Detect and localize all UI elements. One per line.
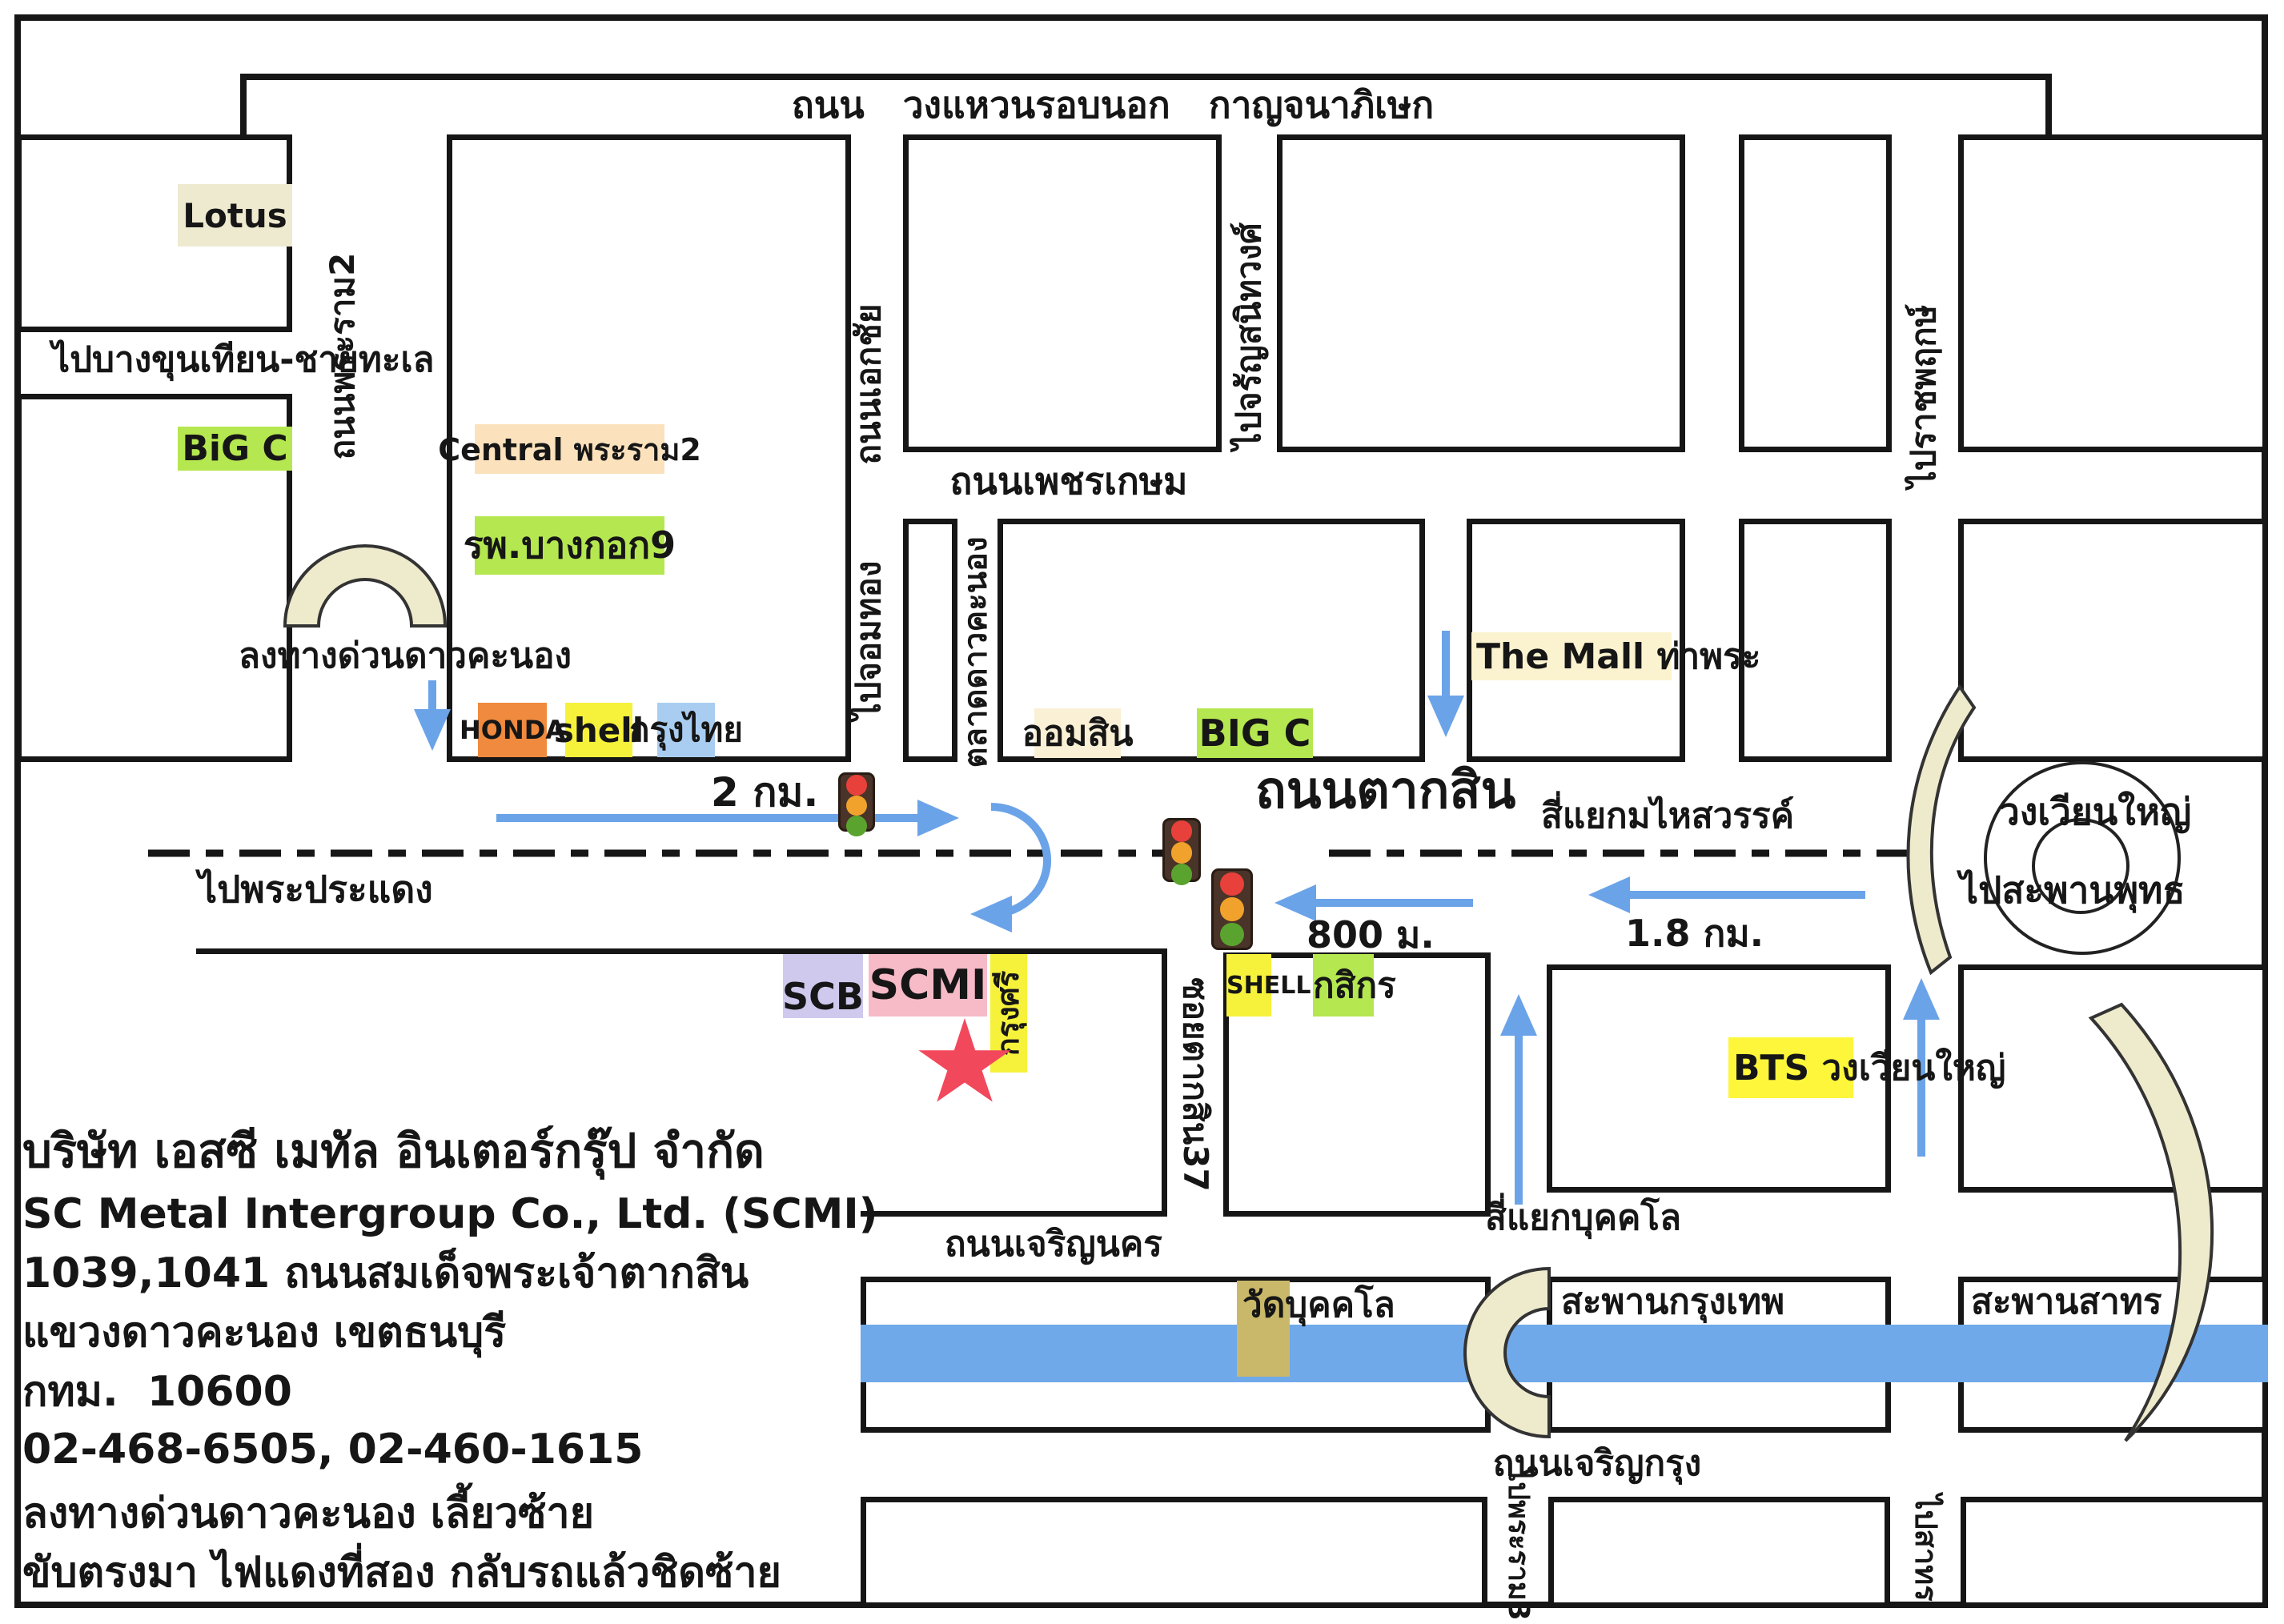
landmark-label-sathorn-bridge: สะพานสาทร (1971, 1282, 2162, 1323)
company-name-en: SC Metal Intergroup Co., Ltd. (SCMI) (22, 1191, 878, 1239)
road-label-ekkachai: ถนนเอกชัย (845, 252, 893, 516)
destination-label-bangkhunthian: ไปบางขุนเทียน-ชายทะเล (52, 340, 435, 381)
bangkok9-hospital-box: รพ.บางกอก9 (475, 516, 664, 575)
route-uturn-arrow (991, 807, 1047, 914)
traffic-light-icon (1211, 868, 1253, 950)
company-address1: 1039,1041 ถนนสมเด็จพระเจ้าตากสิน (22, 1250, 749, 1298)
the-mall-box: The Mall ท่าพระ (1471, 632, 1672, 680)
traffic-light-icon (838, 772, 875, 832)
bts-wongwianyai-box: BTS วงเวียนใหญ่ (1728, 1037, 1853, 1098)
road-label-phetkasem: ถนนเพชรเกษม (921, 456, 1217, 506)
directions-line2: ขับตรงมา ไฟแดงที่สอง กลับรถแล้วชิดซ้าย (22, 1550, 781, 1598)
destination-label-charan: ไปจรัญสนิทวงศ์ (1225, 164, 1273, 508)
road-label-soi-taksin37: ซอยตากสิน37 (1171, 952, 1219, 1217)
scb-bank-box: SCB (783, 954, 863, 1018)
junction-label-expressway-exit: ลงทางด่วนดาวคะนอง (239, 636, 572, 677)
landmark-label-krungthep-bridge: สะพานกรุงเทพ (1561, 1282, 1784, 1323)
shell-taksin-box: SHELL (1226, 954, 1271, 1017)
destination-label-rama3: ไปพระราม3 (1495, 1476, 1541, 1612)
junction-label-mahaisawan: สี่แยกมไหสวรรค์ (1541, 796, 1794, 837)
wongwianyai-west-ramp (1908, 687, 1974, 972)
scmi-box: SCMI (869, 954, 987, 1017)
destination-label-chomthong: ไปจอมทอง (845, 520, 893, 760)
lotus-box: Lotus (178, 184, 292, 247)
honda-box: HONDA (478, 703, 547, 757)
road-label-charoennakhon: ถนนเจริญนคร (945, 1225, 1162, 1265)
road-label-taksin: ถนนตากสิน (1255, 762, 1515, 821)
aomsin-bank-box: ออมสิน (1034, 708, 1121, 758)
bigc-rama2-box: BiG C (178, 427, 292, 471)
road-label-outer-ring: ถนน วงแหวนรอบนอก กาญจนาภิเษก (801, 82, 1425, 128)
junction-label-bukkhalo: สี่แยกบุคคโล (1485, 1198, 1681, 1239)
kasikorn-bank-box: กสิกร (1313, 954, 1374, 1017)
junction-label-wongwianyai: วงเวียนใหญ่ (1999, 791, 2191, 833)
bigc-taksin-box: BIG C (1197, 708, 1313, 758)
krungthai-bank-box: กรุงไทย (657, 703, 715, 757)
map-canvas: Lotus BiG C Central พระราม2 รพ.บางกอก9 H… (0, 0, 2284, 1624)
destination-label-saphanphut: ไปสะพานพุทธ (1960, 869, 2185, 912)
krungthep-bridge-arch (1465, 1269, 1549, 1437)
destination-label-sathorn: ไปสาทร (1902, 1484, 1949, 1612)
distance-label-800m: 800 ม. (1307, 914, 1435, 956)
distance-label-1-8km: 1.8 กม. (1625, 912, 1764, 955)
expressway-ramp-arc (285, 546, 445, 626)
sathorn-bridge-ramp (2091, 1004, 2212, 1441)
destination-label-ratchaphruek: ไปราชพฤกษ์ (1900, 264, 1948, 528)
road-label-rama2: ถนนพระราม2 (319, 196, 367, 516)
company-phones: 02-468-6505, 02-460-1615 (22, 1426, 643, 1474)
company-city-postcode: กทม. 10600 (22, 1369, 292, 1417)
central-rama2-box: Central พระราม2 (475, 424, 664, 474)
destination-label-phrapradaeng: ไปพระประแดง (199, 868, 433, 911)
shell-rama2-box: shell (565, 703, 632, 757)
company-name-th: บริษัท เอสซี เมทัล อินเตอร์กรุ๊ป จำกัด (22, 1125, 765, 1178)
distance-label-2km: 2 กม. (711, 770, 818, 816)
company-address2: แขวงดาวคะนอง เขตธนบุรี (22, 1309, 506, 1357)
traffic-light-icon (1162, 818, 1201, 882)
directions-line1: ลงทางด่วนดาวคะนอง เลี้ยวซ้าย (22, 1490, 594, 1538)
landmark-label-watbukkhalo: วัดบุคคโล (1242, 1285, 1395, 1326)
road-label-talat-daokhanong: ตลาดดาวคะนอง (952, 520, 1000, 784)
